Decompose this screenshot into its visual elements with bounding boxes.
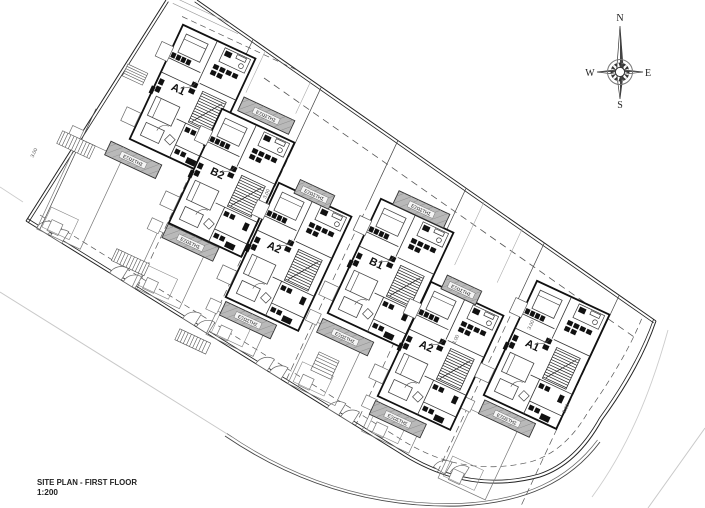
svg-text:W: W [585, 68, 595, 79]
svg-text:1:200: 1:200 [37, 488, 58, 497]
svg-text:N: N [616, 13, 623, 24]
svg-text:S: S [617, 100, 623, 111]
svg-text:SITE PLAN - FIRST FLOOR: SITE PLAN - FIRST FLOOR [37, 477, 138, 487]
svg-text:E: E [645, 68, 651, 79]
